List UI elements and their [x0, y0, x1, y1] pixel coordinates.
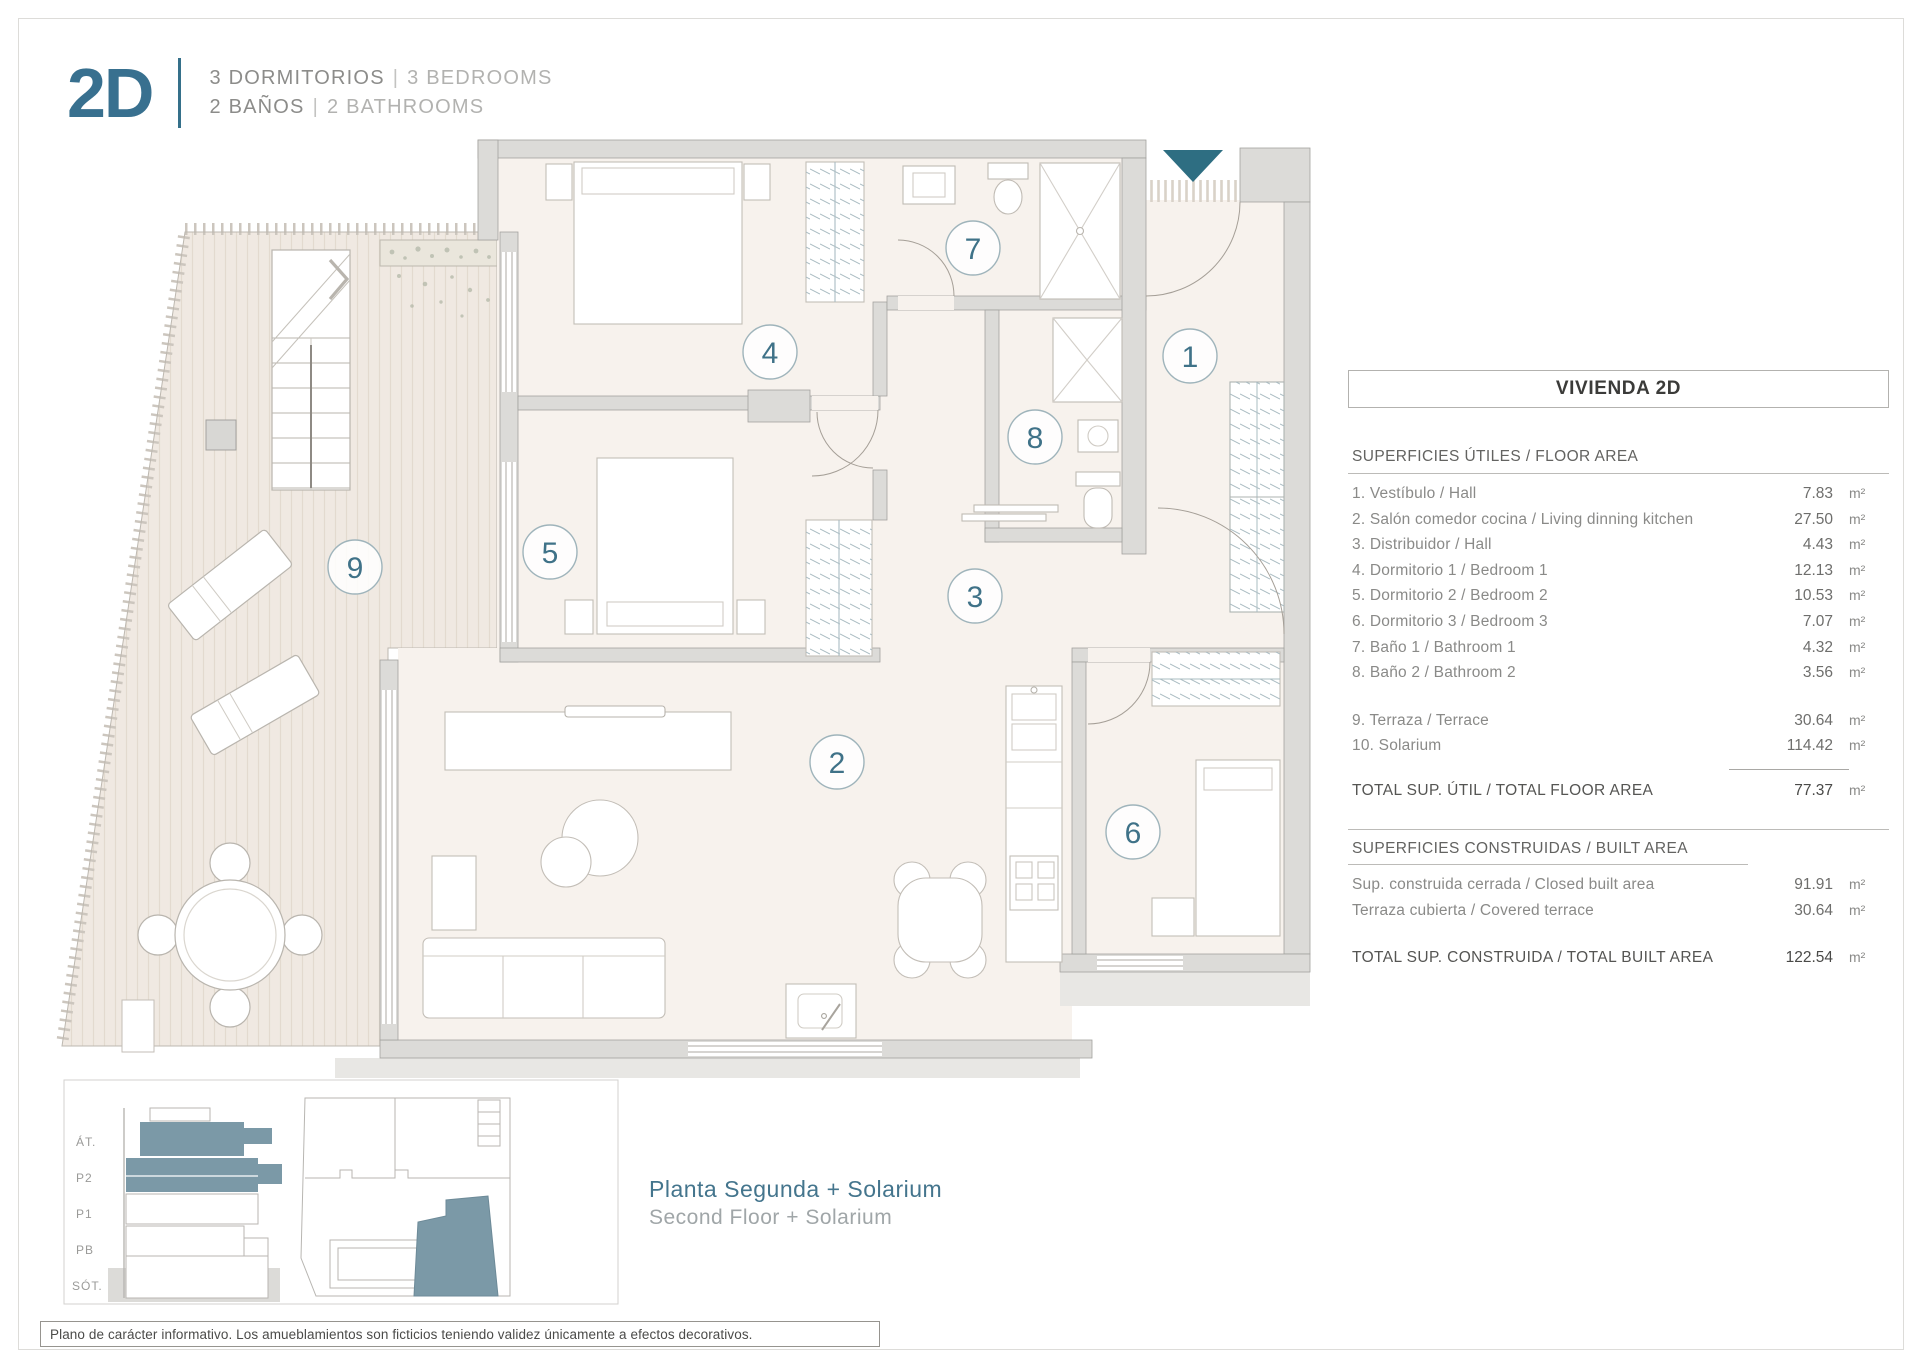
- plan-caption: Planta Segunda + Solarium Second Floor +…: [649, 1176, 942, 1230]
- plan-caption-es: Planta Segunda + Solarium: [649, 1176, 942, 1203]
- plan-caption-en: Second Floor + Solarium: [649, 1206, 942, 1230]
- footer: Plano de carácter informativo. Los amueb…: [40, 1321, 880, 1347]
- highlighted-floor-at: [140, 1122, 244, 1156]
- plan-sheet: 2D 3 DORMITORIOS|3 BEDROOMS 2 BAÑOS|2 BA…: [0, 0, 1920, 1357]
- svg-text:SÓT.: SÓT.: [72, 1278, 103, 1293]
- site-plan: [301, 1098, 510, 1296]
- building-section: ÁT. P2 P1 PB SÓT.: [72, 1108, 282, 1302]
- highlighted-floor-p2: [126, 1158, 258, 1192]
- svg-text:P2: P2: [76, 1171, 93, 1185]
- svg-text:ÁT.: ÁT.: [76, 1134, 96, 1149]
- disclaimer: Plano de carácter informativo. Los amueb…: [41, 1327, 753, 1342]
- svg-text:P1: P1: [76, 1207, 93, 1221]
- mini-diagrams: ÁT. P2 P1 PB SÓT.: [0, 0, 1920, 1357]
- svg-text:PB: PB: [76, 1243, 94, 1257]
